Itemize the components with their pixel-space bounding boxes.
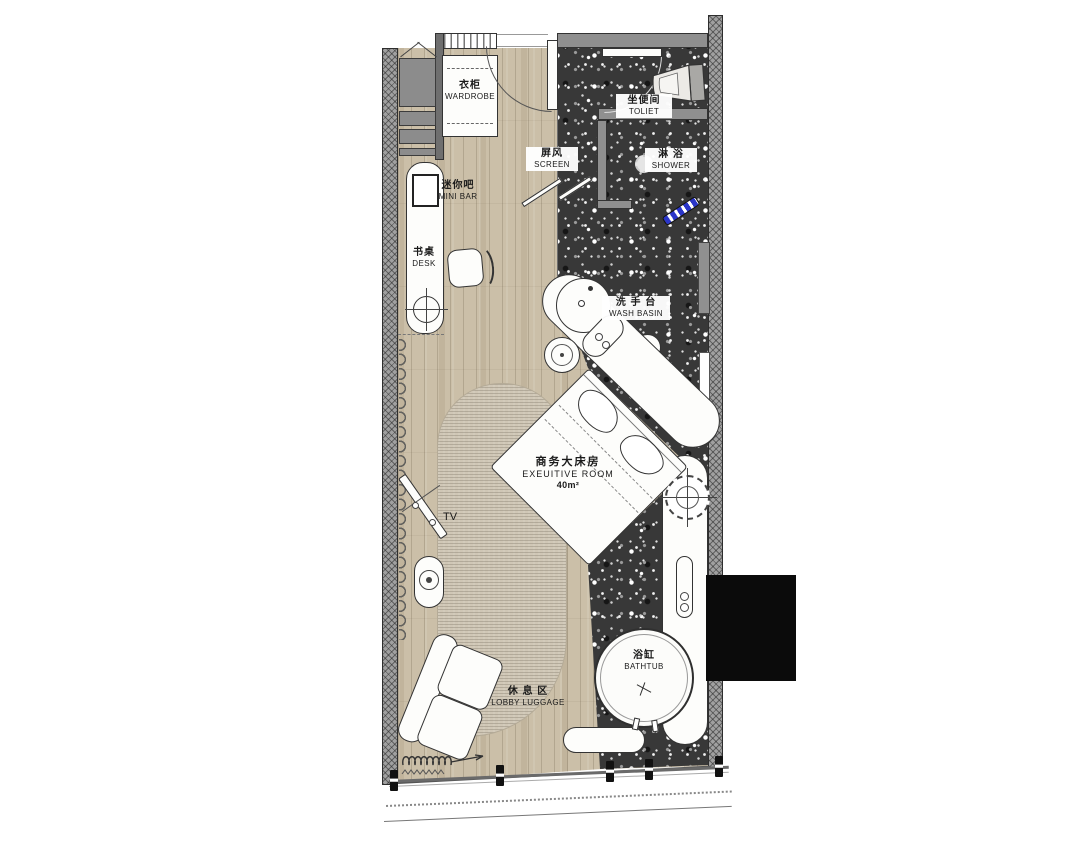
balcony-dotted-line (386, 791, 732, 807)
window-mullion (390, 770, 398, 791)
shaft-box (399, 148, 436, 156)
wall-shower-stub (597, 200, 632, 209)
amenity-dot (602, 341, 610, 349)
label-screen: 屏风 SCREEN (526, 147, 578, 171)
window-mullion (715, 756, 723, 777)
label-toilet-zh: 坐便间 (618, 95, 670, 107)
bathtub-inner-rim (600, 634, 688, 722)
wall-left (382, 48, 398, 785)
curtain-symbol (399, 750, 491, 784)
label-tv: TV (436, 506, 464, 525)
guide-dash-line (398, 334, 444, 335)
label-lounge-en: LOBBY LUGGAGE (486, 698, 570, 708)
label-screen-zh: 屏风 (528, 148, 576, 160)
holder-inner-ring (676, 486, 699, 509)
window-mullion (645, 759, 653, 780)
label-bathtub-en: BATHTUB (611, 662, 677, 672)
label-shower-en: SHOWER (647, 161, 695, 171)
tv-mount-dot (429, 519, 436, 526)
entry-door-leaf (547, 40, 558, 110)
amenity-dot (595, 333, 603, 341)
wall-shower-vertical (597, 120, 607, 208)
balcony-line (384, 806, 732, 822)
label-wash-basin: 洗 手 台 WASH BASIN (602, 296, 670, 320)
label-lounge: 休 息 区 LOBBY LUGGAGE (486, 686, 570, 708)
label-wardrobe-en: WARDROBE (440, 92, 500, 102)
basin-faucet-dot (588, 286, 593, 291)
desk-lamp-cross-line (426, 288, 427, 331)
label-wash-basin-zh: 洗 手 台 (604, 297, 668, 309)
label-lounge-zh: 休 息 区 (486, 686, 570, 698)
label-wardrobe: 衣柜 WARDROBE (440, 80, 500, 102)
counter-tray-dot (680, 592, 689, 601)
label-shower: 淋 浴 SHOWER (645, 148, 697, 172)
basin-drain-dot (578, 300, 585, 307)
label-tv-en: TV (443, 511, 457, 523)
label-bathtub-zh: 浴缸 (611, 650, 677, 662)
wall-top-bathroom (557, 33, 708, 48)
label-minibar-en: MINI BAR (426, 192, 490, 202)
floor-lamp-dot (426, 577, 432, 583)
label-toilet: 坐便间 TOLIET (616, 94, 672, 118)
label-screen-en: SCREEN (528, 160, 576, 170)
label-wash-basin-en: WASH BASIN (604, 309, 668, 319)
label-desk: 书桌 DESK (398, 247, 450, 269)
bath-mat (563, 727, 645, 753)
label-bathtub: 浴缸 BATHTUB (611, 650, 677, 672)
label-minibar: 迷你吧 MINI BAR (426, 180, 490, 202)
wall-right-inner-strip (698, 242, 710, 314)
label-desk-en: DESK (398, 259, 450, 269)
label-room-en: EXEUITIVE ROOM (498, 469, 638, 480)
label-toilet-en: TOLIET (618, 107, 670, 117)
shaft-box (399, 111, 436, 126)
label-wardrobe-zh: 衣柜 (440, 80, 500, 92)
label-room: 商务大床房 EXEUITIVE ROOM 40m² (498, 456, 638, 491)
floor-plan-canvas: 衣柜 WARDROBE 迷你吧 MINI BAR 书桌 DESK 屏风 SCRE… (0, 0, 1080, 844)
label-desk-zh: 书桌 (398, 247, 450, 259)
toilet-door-leaf (602, 48, 662, 57)
shaft-box (399, 129, 436, 144)
window-mullion (606, 761, 614, 782)
label-minibar-zh: 迷你吧 (426, 180, 490, 192)
redaction-box (706, 575, 796, 681)
label-room-area: 40m² (498, 480, 638, 491)
label-room-zh: 商务大床房 (498, 456, 638, 469)
label-shower-zh: 淋 浴 (647, 149, 695, 161)
counter-tray-dot (680, 603, 689, 612)
window-mullion (496, 765, 504, 786)
side-table-dot (560, 353, 564, 357)
tv-mount-dot (412, 502, 419, 509)
shaft-box (399, 58, 436, 107)
